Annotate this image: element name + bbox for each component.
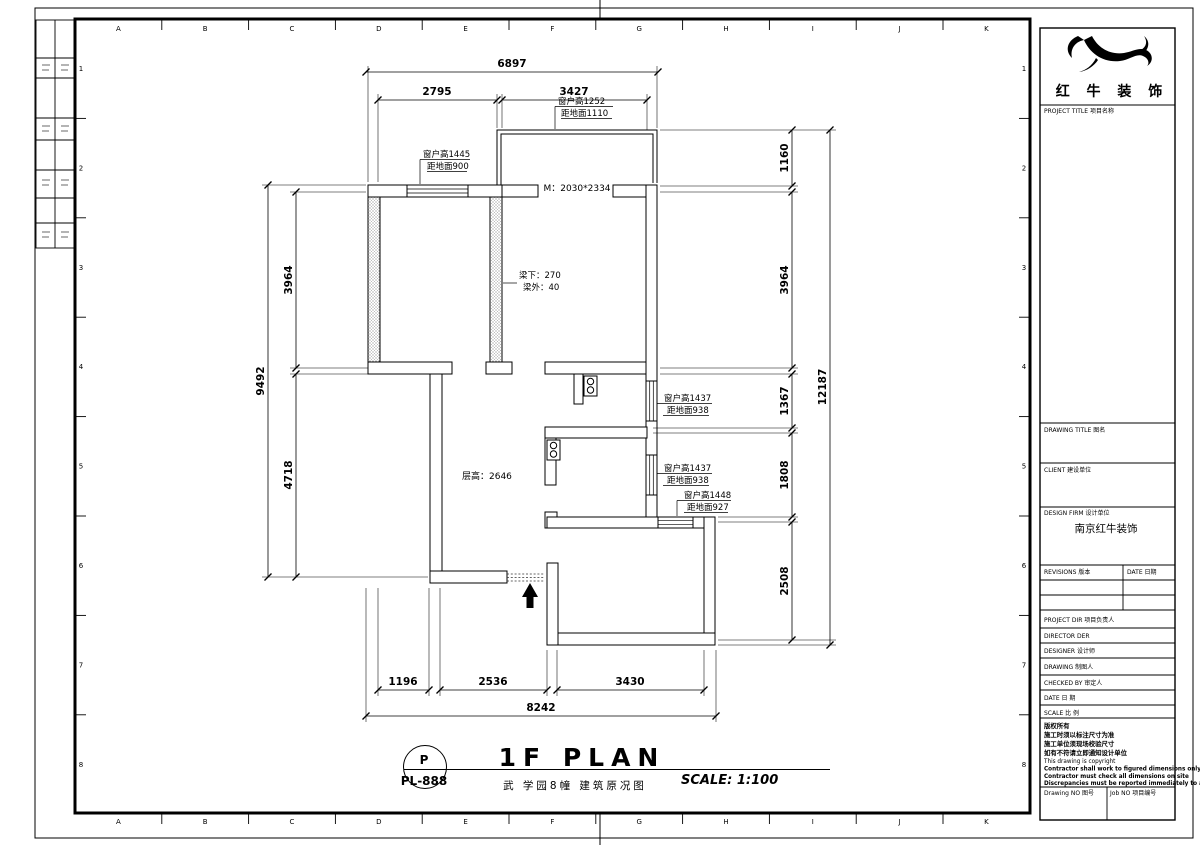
annotation-window-rl-sill: 距地面938 (667, 475, 709, 486)
grid-number: 1 (1022, 65, 1026, 73)
grid-letter: F (550, 818, 554, 826)
dimension-value: 2508 (779, 566, 791, 595)
annotation-window-top-sill: 距地面1110 (561, 108, 608, 119)
company-name: 红 牛 装 饰 (1056, 83, 1169, 100)
grid-letter: K (984, 818, 989, 826)
grid-letter: B (203, 25, 208, 33)
grid-letter: B (203, 818, 208, 826)
grid-letter: D (376, 25, 381, 33)
note-line: 施工时须以标注尺寸为准 (1044, 730, 1115, 739)
annotation-door-size: M：2030*2334 (543, 184, 610, 194)
riser-symbols (547, 376, 597, 460)
grid-number: 5 (1022, 463, 1026, 471)
field-scale: SCALE 比 例 (1044, 709, 1079, 717)
field-drawing-by: DRAWING 制图人 (1044, 663, 1093, 671)
grid-number: 5 (79, 463, 83, 471)
plan-title: 1F PLAN (499, 743, 666, 772)
dimension-value: 3964 (283, 265, 295, 294)
note-line: 如有不符请立即通知设计单位 (1044, 748, 1128, 757)
sheet-frame (35, 0, 1193, 845)
dimension-value: 12187 (817, 369, 829, 406)
company-logo-icon (1068, 36, 1152, 72)
field-drawing-title: DRAWING TITLE 图名 (1044, 426, 1105, 434)
walls (368, 185, 715, 645)
sheet-code-number: PL-888 (401, 774, 447, 788)
note-line: Discrepancies must be reported immediate… (1044, 781, 1200, 787)
field-drawing-no: Drawing NO 图号 (1044, 790, 1094, 797)
grid-letter: J (898, 25, 901, 33)
annotation-window-bottom-height: 窗户高1448 (684, 490, 731, 501)
note-line: 施工单位须现场校验尺寸 (1044, 739, 1115, 748)
note-line: 版权所有 (1043, 721, 1070, 730)
footer-title: P PL-888 1F PLAN 武 学园8幢 建筑原况图 SCALE: 1:1… (401, 743, 830, 792)
annotation-window-ru-height: 窗户高1437 (664, 393, 711, 404)
field-checked-by: CHECKED BY 审定人 (1044, 679, 1102, 687)
field-date-col: DATE 日期 (1127, 568, 1157, 576)
design-firm-value: 南京红牛装饰 (1075, 522, 1138, 535)
entry-arrow-icon (522, 583, 538, 608)
grid-letter: E (463, 818, 467, 826)
hatched-wall-divider (490, 197, 502, 362)
grid-number: 3 (79, 264, 83, 272)
field-design-firm: DESIGN FIRM 设计单位 (1044, 509, 1110, 517)
copyright-notes: 版权所有 施工时须以标注尺寸为准 施工单位须现场校验尺寸 如有不符请立即通知设计… (1043, 721, 1200, 787)
balcony-outline-inner (501, 134, 653, 185)
revision-strip-table (36, 20, 74, 248)
annotation-window-ru-sill: 距地面938 (667, 405, 709, 416)
dimension-value: 1808 (779, 460, 791, 489)
annotation-window-bottom-sill: 距地面927 (687, 502, 729, 513)
dimension-lines: 6897279534279492396447181160396413671808… (255, 58, 834, 720)
field-project-dir: PROJECT DIR 项目负责人 (1044, 616, 1114, 624)
dimension-value: 8242 (526, 702, 555, 714)
field-date: DATE 日 期 (1044, 694, 1075, 702)
dimension-value: 9492 (255, 366, 267, 395)
dimension-value: 3964 (779, 265, 791, 294)
grid-number: 6 (1022, 562, 1027, 570)
title-block: 红 牛 装 饰 PROJECT TITLE 项目名称 DRAWING TITLE… (1040, 28, 1200, 820)
grid-letter: I (812, 25, 814, 33)
dimension-value: 2795 (422, 86, 451, 98)
hatched-wall-left (368, 197, 380, 362)
dimension-value: 6897 (497, 58, 526, 70)
grid-number: 4 (79, 363, 84, 371)
field-client: CLIENT 建设单位 (1044, 466, 1091, 474)
annotation-beam-below: 梁下：270 (519, 271, 561, 281)
note-line: Contractor must check all dimensions on … (1044, 774, 1189, 780)
grid-letter: J (898, 818, 901, 826)
field-director: DIRECTOR DER (1044, 633, 1090, 640)
annotation-window-left-height: 窗户高1445 (423, 149, 470, 160)
grid-letter: C (290, 25, 295, 33)
dimension-value: 1160 (779, 143, 791, 172)
dimension-value: 3427 (559, 86, 588, 98)
grid-letter: D (376, 818, 381, 826)
strip-cell-marks (42, 65, 69, 237)
balcony-outline-outer (497, 130, 657, 185)
plan-subtitle: 武 学园8幢 建筑原况图 (503, 779, 647, 792)
grid-number: 8 (1022, 761, 1026, 769)
grid-letter: C (290, 818, 295, 826)
grid-letter: E (463, 25, 467, 33)
note-line: Contractor shall work to figured dimensi… (1044, 767, 1200, 773)
grid-letter: A (116, 818, 121, 826)
grid-letter: G (636, 25, 641, 33)
dimension-value: 3430 (615, 676, 644, 688)
dimension-value: 1367 (779, 386, 791, 415)
dimension-value: 4718 (283, 460, 295, 489)
grid-letter: F (550, 25, 554, 33)
grid-number: 2 (1022, 164, 1026, 172)
sheet-code-letter: P (420, 753, 429, 767)
field-job-no: Job NO 项目编号 (1109, 789, 1156, 797)
field-project-title: PROJECT TITLE 项目名称 (1044, 107, 1114, 115)
grid-number: 7 (1022, 661, 1026, 669)
plan-scale: SCALE: 1:100 (681, 773, 778, 788)
dimension-value: 2536 (478, 676, 507, 688)
cad-canvas: AABBCCDDEEFFGGHHIIJJKK1122334455667788 (0, 0, 1200, 845)
grid-letter: H (723, 25, 728, 33)
grid-number: 3 (1022, 264, 1026, 272)
grid-number: 4 (1022, 363, 1027, 371)
grid-letter: I (812, 818, 814, 826)
drawing-sheet: AABBCCDDEEFFGGHHIIJJKK1122334455667788 (0, 0, 1200, 845)
grid-number: 8 (79, 761, 83, 769)
grid-number: 7 (79, 661, 83, 669)
grid-letter: G (636, 818, 641, 826)
annotation-ceiling-height: 层高：2646 (462, 470, 512, 482)
grid-letter: A (116, 25, 121, 33)
grid-number: 2 (79, 164, 83, 172)
entry-door (507, 574, 545, 608)
field-designer: DESIGNER 设计师 (1044, 647, 1095, 655)
field-revisions: REVISIONS 版本 (1044, 568, 1090, 576)
plan-annotations: 窗户高1445 距地面900 窗户高1252 距地面1110 窗户高1437 距… (420, 96, 731, 516)
annotation-window-rl-height: 窗户高1437 (664, 463, 711, 474)
annotation-beam-outside: 梁外：40 (523, 282, 559, 293)
floor-plan: 窗户高1445 距地面900 窗户高1252 距地面1110 窗户高1437 距… (255, 58, 836, 722)
note-line: This drawing is copyright (1043, 759, 1116, 765)
dimension-value: 1196 (388, 676, 417, 688)
annotation-window-left-sill: 距地面900 (427, 161, 469, 172)
grid-letter: K (984, 25, 989, 33)
grid-number: 6 (79, 562, 84, 570)
grid-letter: H (723, 818, 728, 826)
grid-number: 1 (79, 65, 83, 73)
